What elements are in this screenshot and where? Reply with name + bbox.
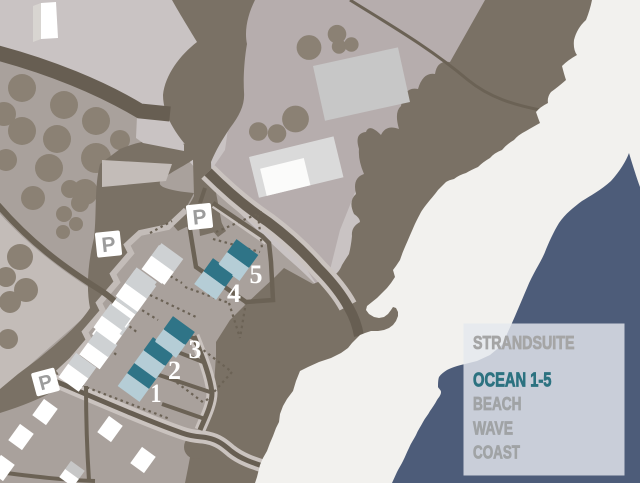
svg-text:BEACH: BEACH (473, 393, 522, 414)
svg-text:WAVE: WAVE (473, 417, 513, 438)
svg-text:3: 3 (189, 335, 202, 364)
svg-text:OCEAN 1-5: OCEAN 1-5 (473, 370, 552, 392)
svg-text:1: 1 (151, 379, 162, 408)
svg-text:2: 2 (168, 356, 181, 385)
svg-text:4: 4 (227, 279, 241, 308)
svg-text:COAST: COAST (473, 442, 521, 463)
svg-text:P: P (100, 233, 116, 257)
svg-text:P: P (191, 205, 207, 229)
svg-text:5: 5 (250, 260, 263, 289)
svg-text:STRANDSUITE: STRANDSUITE (473, 332, 575, 353)
